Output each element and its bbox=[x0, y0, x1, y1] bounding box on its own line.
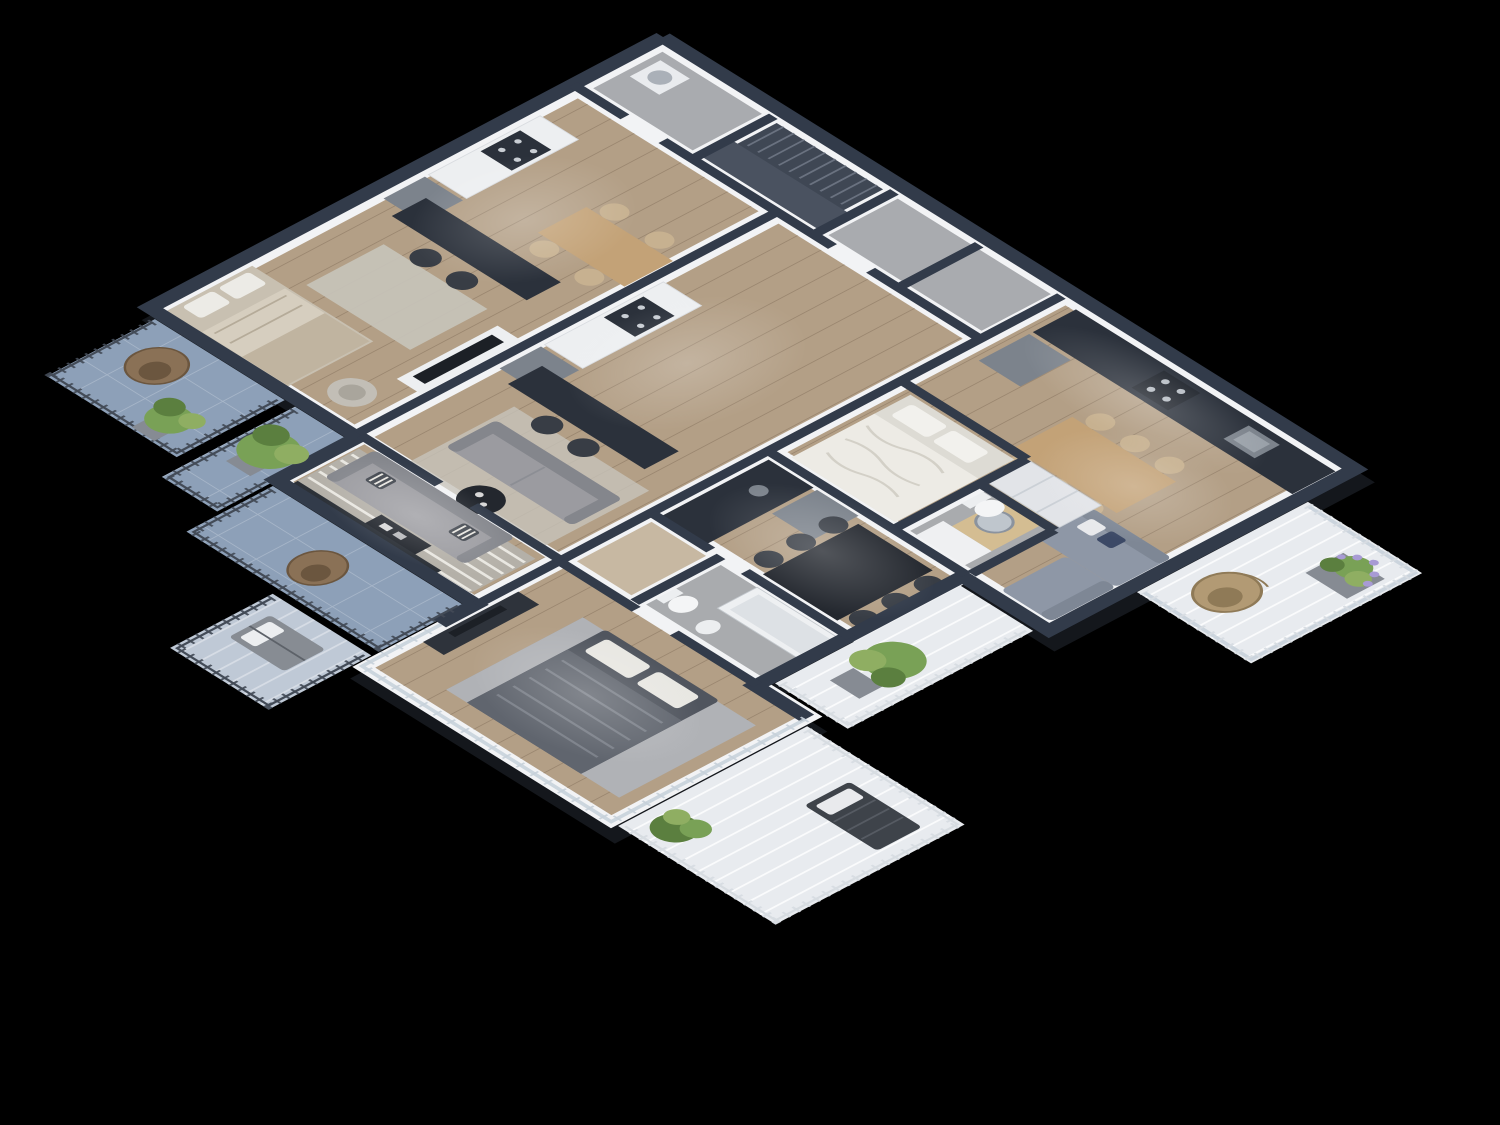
floor-plan-render-stage: 3D cutaway floor plan render of an apart… bbox=[0, 0, 1500, 1125]
floor-plan-render: 3D cutaway floor plan render of an apart… bbox=[0, 0, 1500, 1125]
